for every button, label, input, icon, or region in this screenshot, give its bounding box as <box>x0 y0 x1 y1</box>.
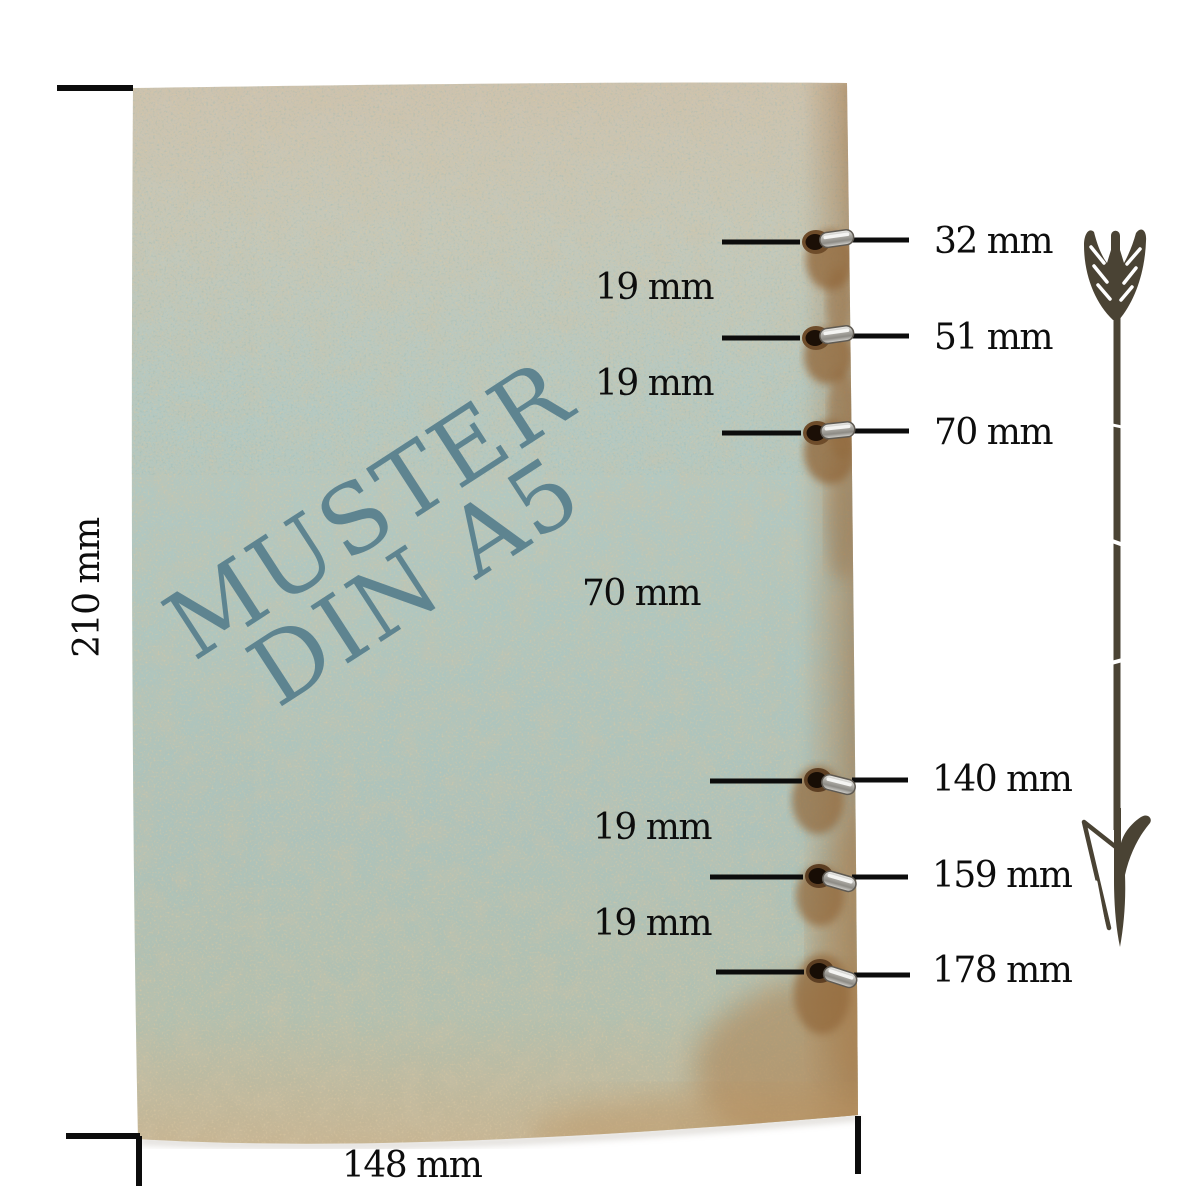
gap-label-19mm-2: 19 mm <box>595 366 713 402</box>
hole-label-32mm: 32 mm <box>934 224 1052 260</box>
sheet-height-label: 210 mm <box>70 518 106 657</box>
arrow-fletching <box>1084 230 1146 320</box>
gap-label-19mm-1: 19 mm <box>595 270 713 306</box>
hole-label-51mm: 51 mm <box>934 320 1052 356</box>
hole-label-159mm: 159 mm <box>932 858 1071 894</box>
hole-label-178mm: 178 mm <box>932 953 1071 989</box>
gap-label-19mm-3: 19 mm <box>593 810 711 846</box>
arrow-decoration <box>1084 230 1151 947</box>
hole-label-70mm: 70 mm <box>934 415 1052 451</box>
gap-label-70mm: 70 mm <box>582 576 700 612</box>
arrow-head <box>1114 808 1151 947</box>
tick-bottom-left-horizontal <box>66 1133 140 1139</box>
sheet-width-label: 148 mm <box>342 1148 481 1184</box>
gap-label-19mm-4: 19 mm <box>593 906 711 942</box>
hole-label-140mm: 140 mm <box>932 762 1071 798</box>
diagram-canvas: MUSTER DIN A5 32 mm 51 mm 70 mm 140 mm 1… <box>0 0 1200 1200</box>
arrow-shaft <box>1114 310 1121 830</box>
tick-bottom-right-vertical <box>855 1116 861 1174</box>
tick-top-left <box>57 85 133 91</box>
tick-bottom-left-vertical <box>136 1136 142 1186</box>
